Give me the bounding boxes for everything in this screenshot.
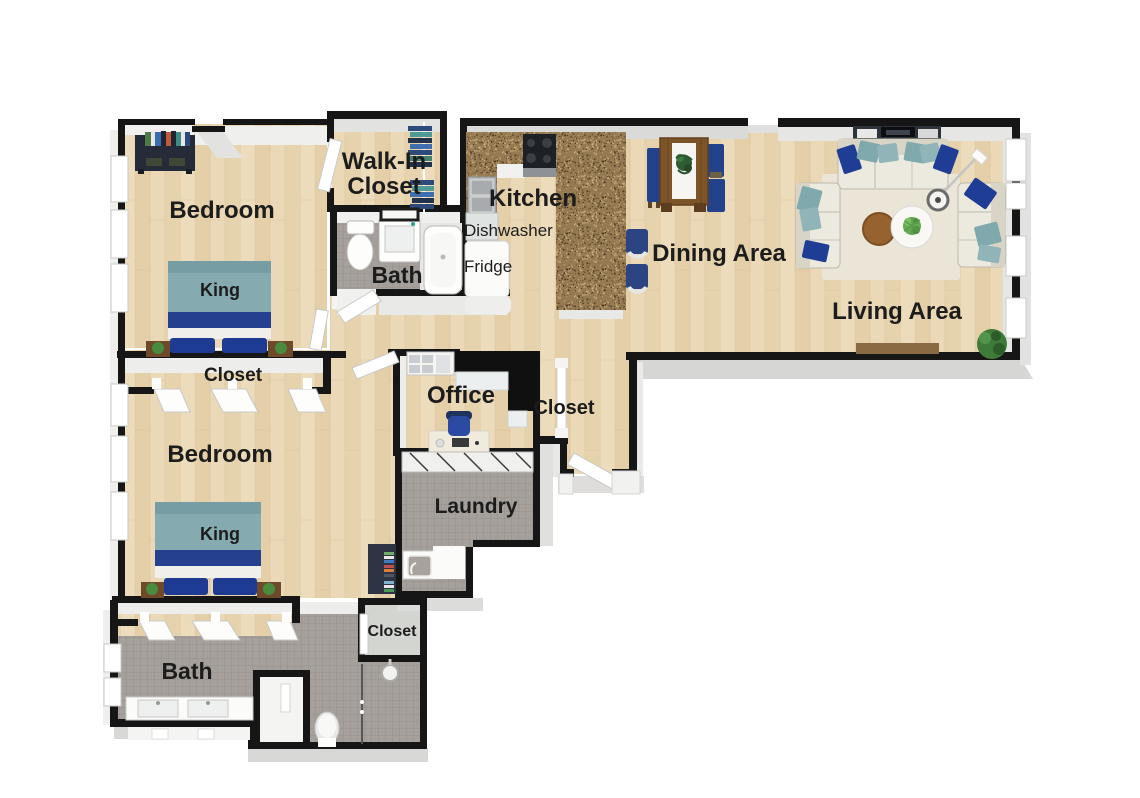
svg-text:Closet: Closet	[347, 173, 420, 200]
svg-text:Walk-In: Walk-In	[342, 148, 426, 175]
svg-text:Closet: Closet	[368, 623, 418, 640]
svg-text:Closet: Closet	[204, 365, 263, 386]
svg-text:Bath: Bath	[371, 262, 422, 288]
svg-text:Dining Area: Dining Area	[652, 240, 786, 267]
svg-text:Bath: Bath	[161, 658, 212, 684]
svg-text:Living Area: Living Area	[832, 298, 962, 325]
svg-text:Bedroom: Bedroom	[167, 441, 272, 468]
svg-text:Laundry: Laundry	[435, 495, 518, 518]
svg-text:Fridge: Fridge	[464, 257, 512, 276]
svg-text:Dishwasher: Dishwasher	[464, 221, 553, 240]
svg-text:Office: Office	[427, 382, 495, 409]
svg-text:King: King	[200, 280, 240, 300]
svg-text:Closet: Closet	[533, 397, 594, 419]
svg-text:Bedroom: Bedroom	[169, 197, 274, 224]
svg-text:King: King	[200, 524, 240, 544]
svg-text:Kitchen: Kitchen	[489, 185, 577, 212]
